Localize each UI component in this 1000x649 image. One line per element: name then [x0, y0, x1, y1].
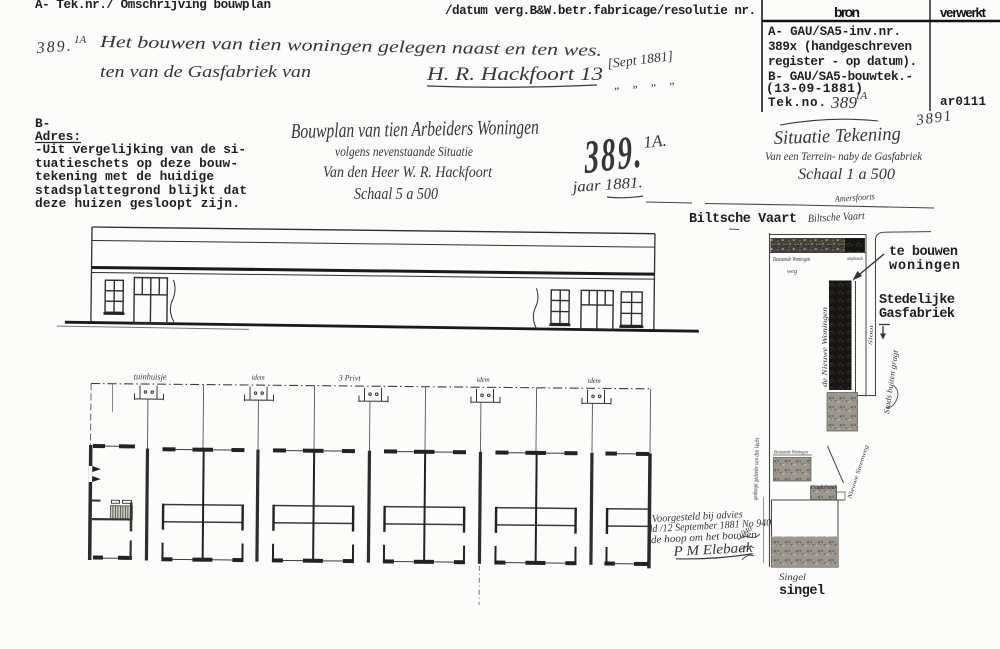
- svg-text:verwerkt: verwerkt: [940, 5, 987, 20]
- svg-text:Tek.no.: Tek.no.: [768, 96, 826, 110]
- svg-text:Biltsche Vaart: Biltsche Vaart: [689, 212, 797, 227]
- svg-text:[Sept 1881]: [Sept 1881]: [607, 48, 674, 71]
- svg-text:P M Elebaak: P M Elebaak: [672, 541, 754, 560]
- svg-text:Bestaande Woningen: Bestaande Woningen: [774, 450, 808, 456]
- svg-text:ar0111: ar0111: [940, 95, 986, 109]
- svg-text:idem: idem: [588, 377, 601, 385]
- svg-text:te bouwen: te bouwen: [889, 245, 958, 260]
- svg-text:Gasfabriek: Gasfabriek: [811, 484, 837, 491]
- svg-text:Bouwplan van tien Arbeiders Wo: Bouwplan van tien Arbeiders Woningen: [291, 115, 539, 143]
- svg-text:3891: 3891: [914, 108, 952, 129]
- svg-text:Sloot: Sloot: [868, 324, 875, 345]
- svg-text:3 Privt: 3 Privt: [338, 373, 362, 382]
- svg-text:Het bouwen van tien woningen g: Het bouwen van tien woningen gelegen naa…: [99, 32, 603, 60]
- svg-text:jaar 1881.: jaar 1881.: [570, 174, 643, 196]
- svg-text:tekening met de huidige: tekening met de huidige: [35, 169, 214, 184]
- svg-text:de Nieuwe Woningen: de Nieuwe Woningen: [821, 306, 829, 387]
- svg-text:idem: idem: [477, 376, 490, 384]
- svg-text:bron: bron: [834, 4, 860, 20]
- svg-text:1A.: 1A.: [642, 131, 667, 152]
- svg-text:Stads buiten gragt: Stads buiten gragt: [882, 349, 900, 414]
- svg-text:register - op datum).: register - op datum).: [768, 55, 917, 69]
- svg-text:singel: singel: [779, 584, 825, 599]
- svg-text:1A: 1A: [855, 90, 868, 102]
- svg-text:Stedelijke: Stedelijke: [879, 293, 955, 308]
- svg-text:H. R. Hackfoort 13: H. R. Hackfoort 13: [426, 64, 603, 85]
- svg-text:gedempt gedeelte van den Vecht: gedempt gedeelte van den Vecht: [752, 438, 761, 500]
- svg-text:Schaal 1 a 500: Schaal 1 a 500: [798, 166, 895, 183]
- svg-text:/datum verg.B&W.betr.fabricage: /datum verg.B&W.betr.fabricage/resolutie…: [445, 4, 756, 18]
- svg-text:389.: 389.: [35, 38, 71, 57]
- svg-text:-Uit vergelijking van de si-: -Uit vergelijking van de si-: [35, 142, 246, 157]
- svg-text:Bestaande Woningen: Bestaande Woningen: [773, 256, 810, 263]
- svg-text:idem: idem: [252, 374, 265, 382]
- svg-text:Nieuwe Steenweg: Nieuwe Steenweg: [847, 445, 870, 501]
- svg-text:deze huizen gesloopt zijn.: deze huizen gesloopt zijn.: [35, 196, 240, 211]
- svg-text:tuinhuisje: tuinhuisje: [134, 371, 167, 381]
- svg-text:389: 389: [830, 93, 858, 112]
- svg-text:volgens nevenstaande Situatie: volgens nevenstaande Situatie: [335, 144, 473, 159]
- svg-text:389x (handgeschreven: 389x (handgeschreven: [768, 40, 912, 54]
- svg-text:weg: weg: [787, 269, 797, 275]
- svg-text:Van een Terrein- naby de Gasfa: Van een Terrein- naby de Gasfabriek: [765, 151, 923, 163]
- svg-text:Schaal 5 a 500: Schaal 5 a 500: [354, 184, 439, 203]
- svg-text:Amersfoorts: Amersfoorts: [834, 191, 876, 204]
- svg-text:A- Tek.nr./ Omschrijving bouwp: A- Tek.nr./ Omschrijving bouwplan: [35, 0, 271, 12]
- svg-text:Gasfabriek: Gasfabriek: [879, 307, 955, 322]
- svg-text:1A: 1A: [74, 34, 87, 46]
- svg-text:aangebouwde: aangebouwde: [847, 256, 863, 262]
- svg-text:„ „ „ „: „ „ „ „: [613, 73, 676, 92]
- svg-text:Biltsche Vaart: Biltsche Vaart: [808, 210, 866, 225]
- svg-text:woningen: woningen: [889, 259, 960, 274]
- svg-text:Van den Heer W. R. Hackfoort: Van den Heer W. R. Hackfoort: [323, 164, 493, 181]
- svg-text:Situatie Tekening: Situatie Tekening: [773, 124, 901, 149]
- svg-text:ten van de Gasfabriek van: ten van de Gasfabriek van: [100, 62, 311, 81]
- svg-text:Singel: Singel: [779, 572, 807, 582]
- svg-text:A- GAU/SA5-inv.nr.: A- GAU/SA5-inv.nr.: [768, 25, 901, 39]
